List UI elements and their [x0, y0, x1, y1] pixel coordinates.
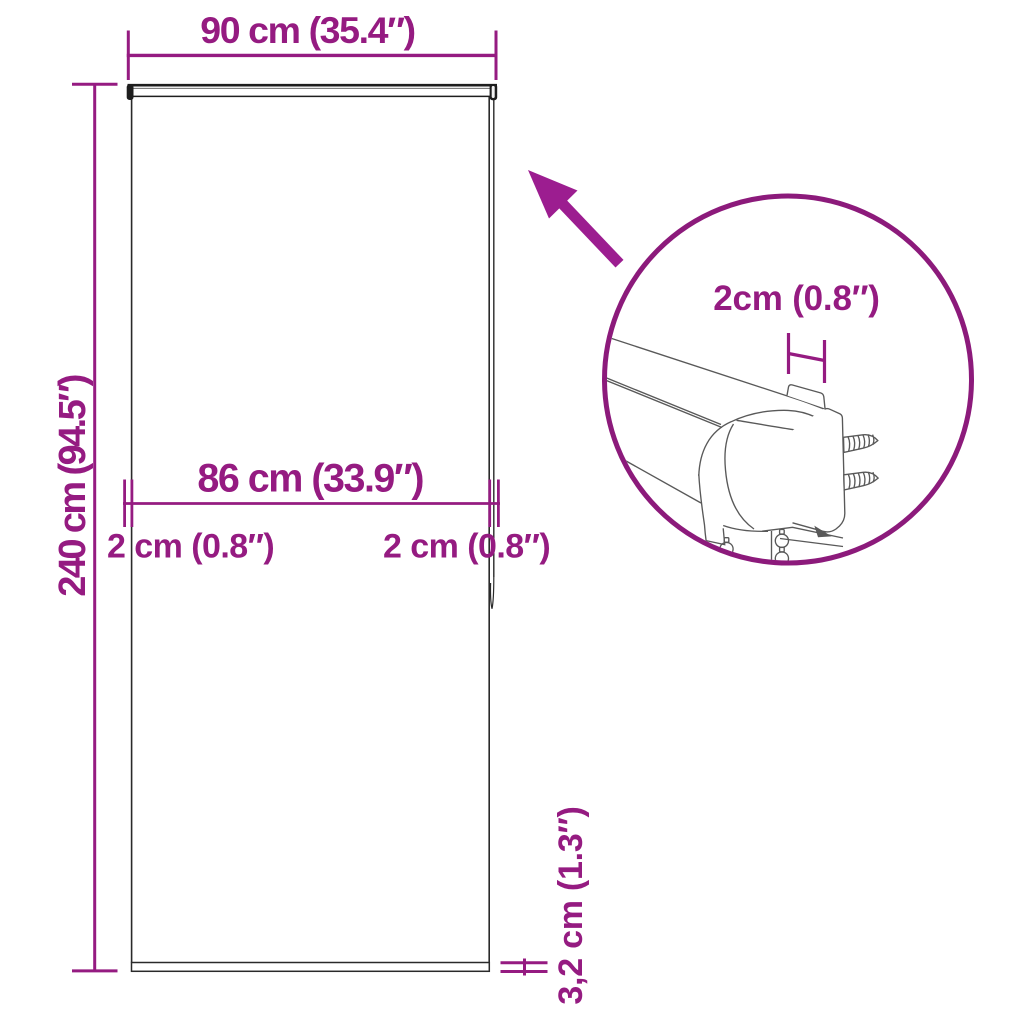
svg-text:86 cm (33.9″): 86 cm (33.9″)	[197, 457, 423, 501]
svg-text:2cm (0.8″): 2cm (0.8″)	[713, 279, 880, 318]
svg-text:3,2 cm (1.3″): 3,2 cm (1.3″)	[552, 806, 590, 1004]
svg-text:90 cm (35.4″): 90 cm (35.4″)	[200, 9, 414, 51]
svg-text:2 cm (0.8″): 2 cm (0.8″)	[383, 528, 550, 566]
svg-text:2 cm (0.8″): 2 cm (0.8″)	[107, 528, 274, 566]
svg-text:240 cm (94.5″): 240 cm (94.5″)	[52, 375, 94, 596]
